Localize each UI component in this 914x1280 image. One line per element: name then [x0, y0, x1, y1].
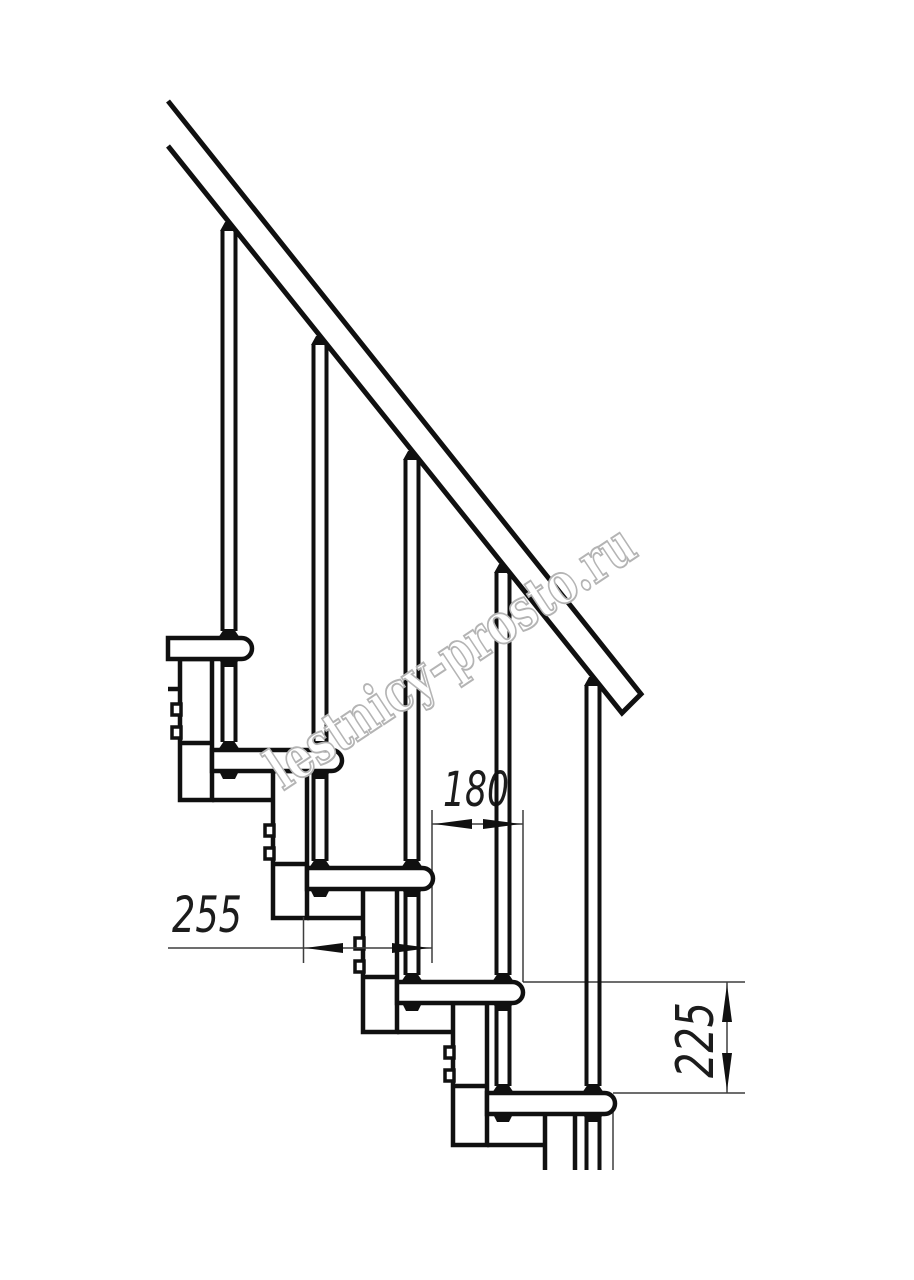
bolt-tab — [355, 961, 364, 972]
bolt-tab — [445, 1070, 454, 1081]
arrowhead-left — [434, 819, 472, 829]
tread-1 — [168, 638, 252, 659]
dim-label-225: 225 — [666, 1002, 726, 1078]
bolt-tab — [265, 825, 274, 836]
dim-label-180: 180 — [443, 762, 509, 818]
bolt-tab — [445, 1047, 454, 1058]
technical-drawing-page: 255 180 225 — [0, 0, 914, 1280]
arrowhead-right — [483, 819, 521, 829]
dim-label-255: 255 — [172, 886, 242, 944]
arrowhead-left — [305, 943, 343, 953]
bolt-tab — [265, 848, 274, 859]
tread-4 — [397, 982, 523, 1003]
staircase-side-view-drawing: 255 180 225 — [0, 0, 914, 1280]
dim-step-rise: 225 — [523, 982, 745, 1170]
support-module-5 — [545, 1114, 575, 1170]
support-module-4 — [445, 1003, 543, 1145]
tread-5 — [487, 1093, 615, 1114]
arrowhead-right — [392, 943, 430, 953]
bolt-tab — [172, 727, 181, 738]
tread-3 — [307, 868, 433, 889]
bolt-tab — [172, 704, 181, 715]
